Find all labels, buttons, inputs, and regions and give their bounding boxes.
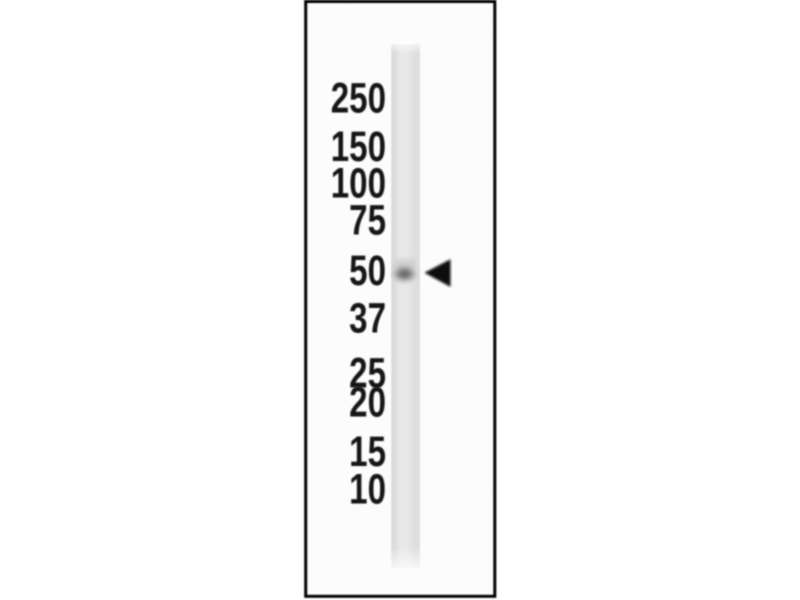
svg-text:250: 250 <box>331 74 386 122</box>
svg-text:37: 37 <box>349 294 386 342</box>
svg-text:50: 50 <box>349 247 386 295</box>
svg-text:75: 75 <box>349 196 386 244</box>
svg-text:10: 10 <box>349 465 386 513</box>
svg-text:20: 20 <box>349 378 386 426</box>
